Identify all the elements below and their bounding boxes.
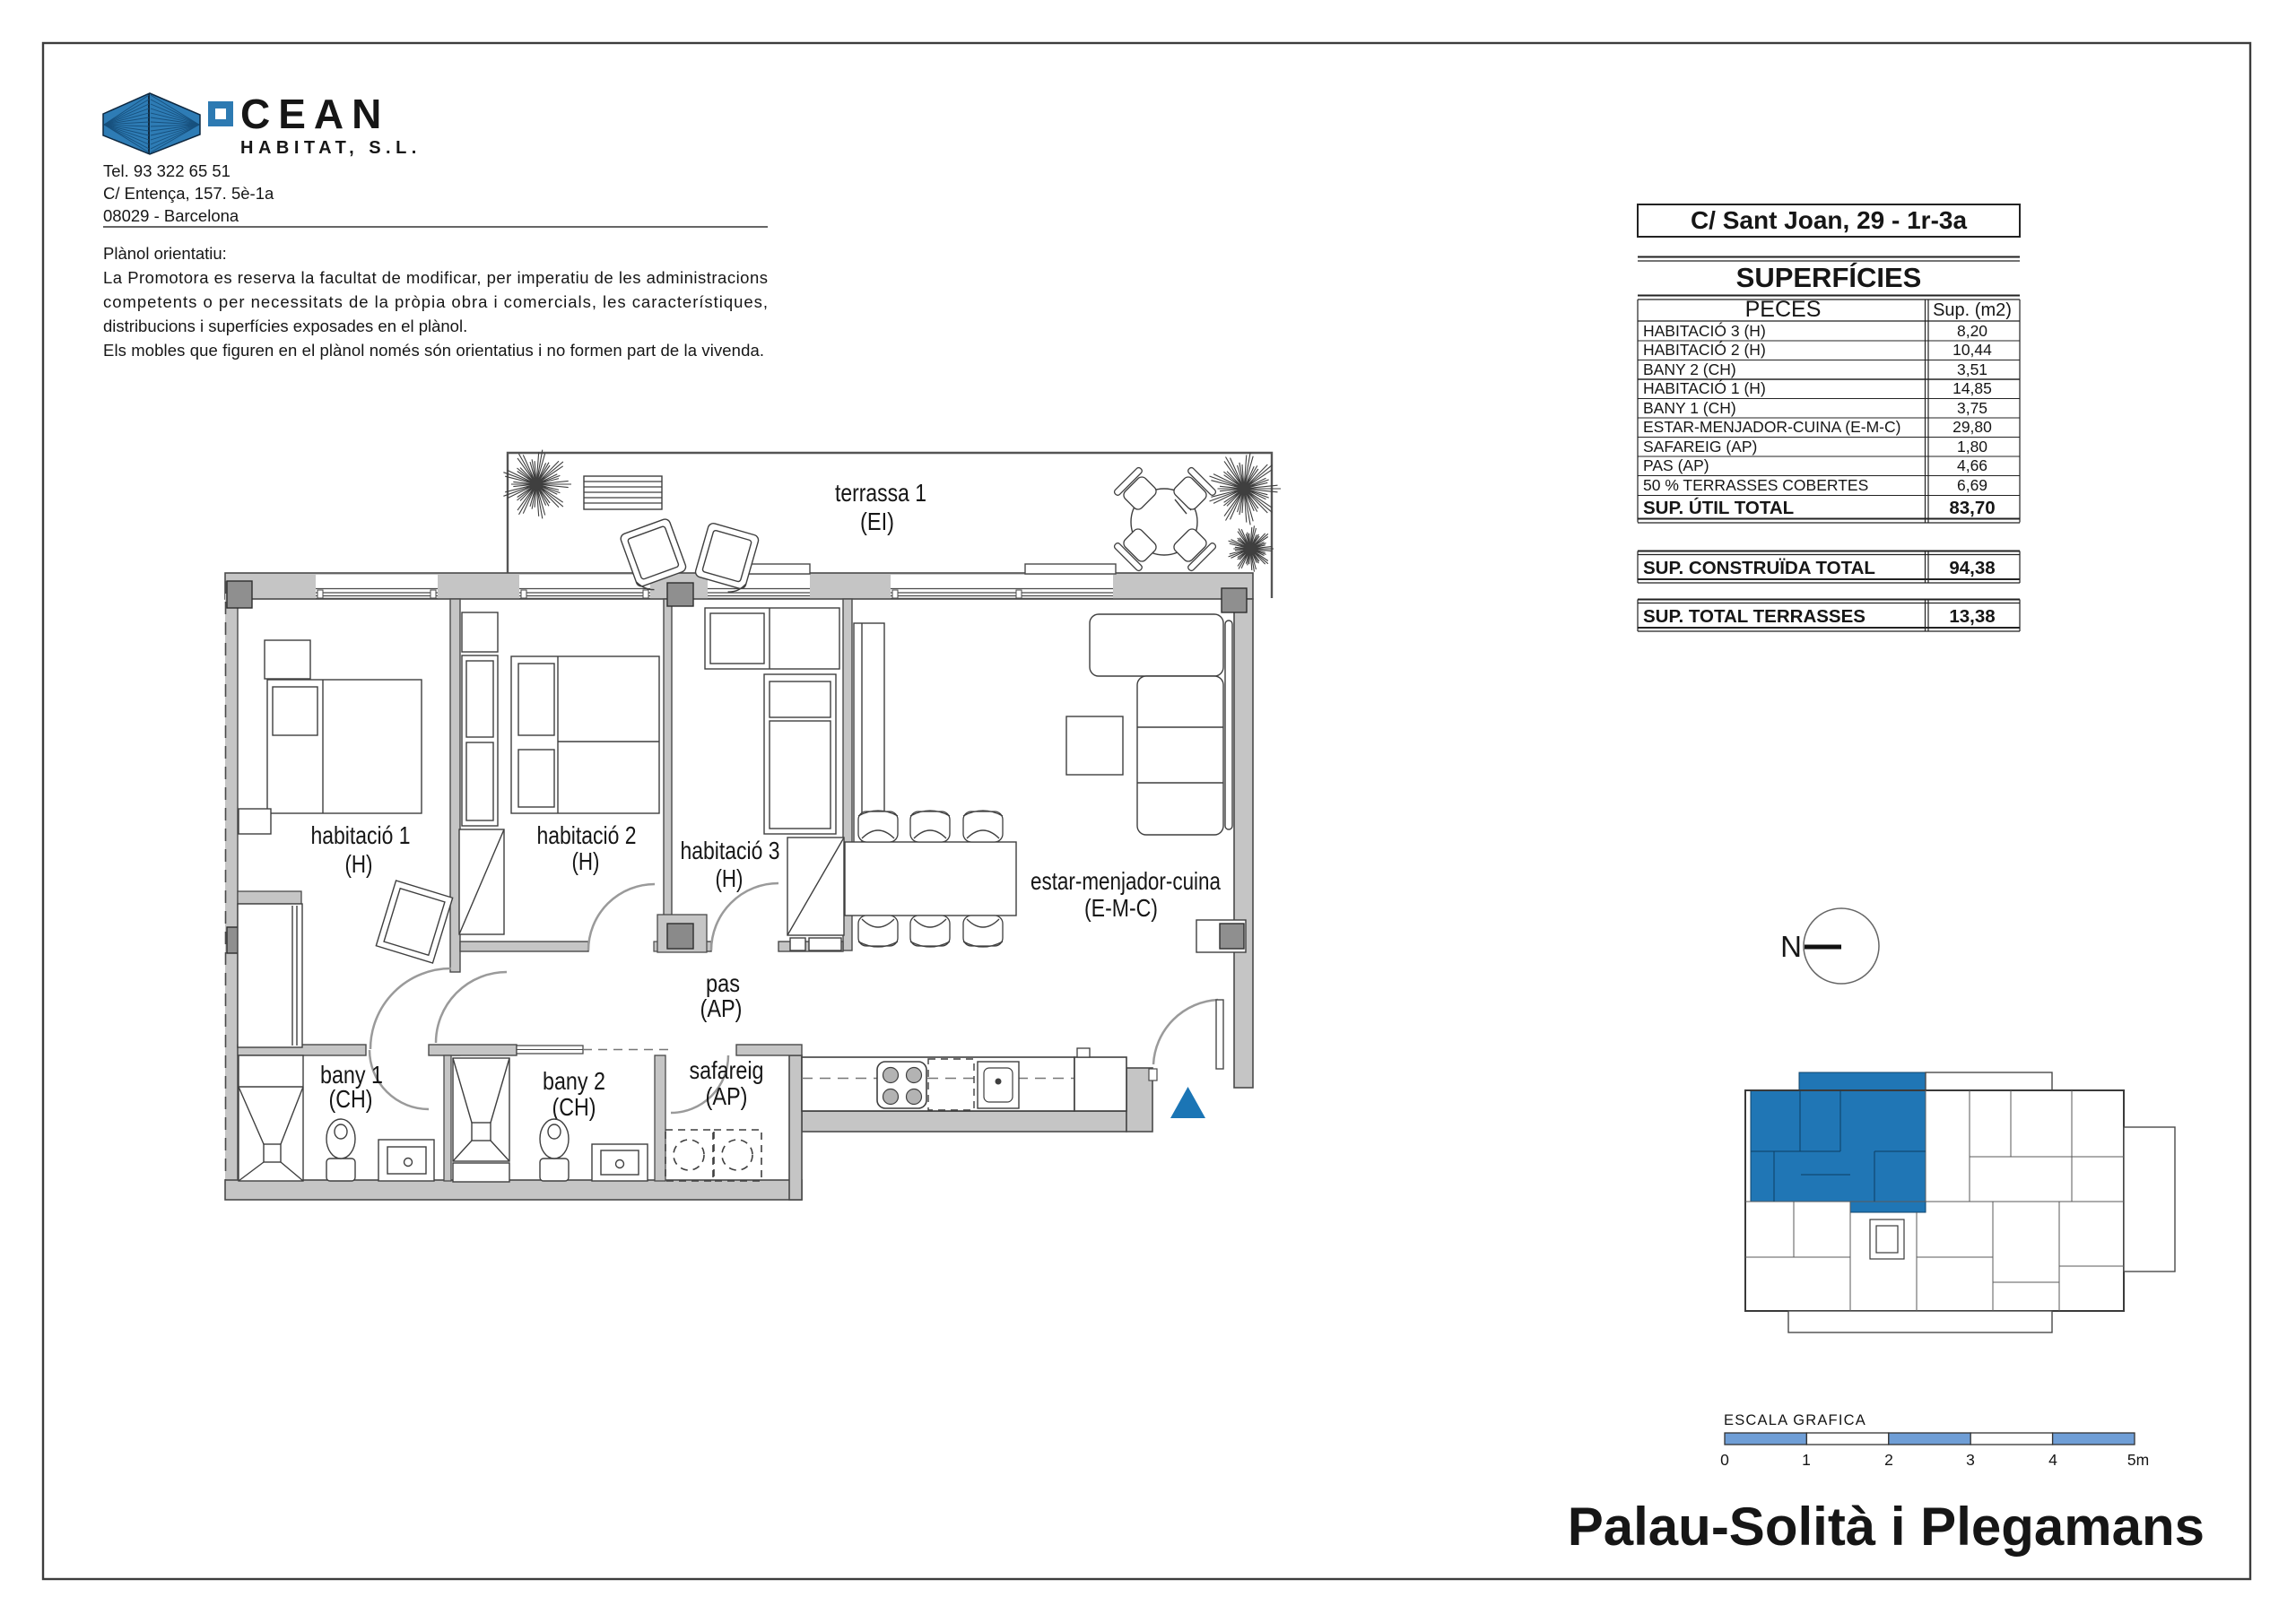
svg-text:5m: 5m (2127, 1451, 2149, 1469)
svg-text:ESTAR-MENJADOR-CUINA (E-M-C): ESTAR-MENJADOR-CUINA (E-M-C) (1643, 418, 1900, 436)
svg-text:terrassa 1: terrassa 1 (835, 479, 926, 507)
svg-text:HABITACIÓ 2 (H): HABITACIÓ 2 (H) (1643, 340, 1766, 359)
svg-text:(E-M-C): (E-M-C) (1084, 894, 1158, 922)
svg-text:habitació 1: habitació 1 (311, 821, 411, 849)
svg-text:C/ Sant Joan, 29 - 1r-3a: C/ Sant Joan, 29 - 1r-3a (1691, 206, 1968, 234)
svg-text:N: N (1780, 930, 1802, 963)
svg-text:8,20: 8,20 (1957, 322, 1987, 340)
svg-text:distribucions i superfícies ex: distribucions i superfícies exposades en… (103, 317, 467, 335)
svg-text:13,38: 13,38 (1949, 606, 1995, 627)
svg-text:3: 3 (1966, 1451, 1975, 1469)
svg-text:safareig: safareig (690, 1056, 764, 1084)
svg-text:SUP. TOTAL TERRASSES: SUP. TOTAL TERRASSES (1643, 606, 1865, 627)
svg-text:94,38: 94,38 (1949, 558, 1995, 578)
svg-text:(EI): (EI) (860, 508, 894, 535)
svg-text:29,80: 29,80 (1952, 418, 1992, 436)
svg-text:SUPERFÍCIES: SUPERFÍCIES (1736, 262, 1922, 293)
svg-text:estar-menjador-cuina: estar-menjador-cuina (1031, 867, 1221, 895)
svg-text:PAS (AP): PAS (AP) (1643, 456, 1709, 474)
svg-text:CEAN: CEAN (240, 91, 389, 137)
svg-text:SUP. CONSTRUÏDA TOTAL: SUP. CONSTRUÏDA TOTAL (1643, 558, 1875, 578)
svg-text:83,70: 83,70 (1949, 498, 1995, 518)
svg-text:La Promotora es reserva la fac: La Promotora es reserva la facultat de m… (103, 268, 768, 287)
svg-text:(H): (H) (716, 864, 744, 892)
svg-text:Els mobles que figuren en el p: Els mobles que figuren en el plànol nomé… (103, 341, 764, 360)
svg-text:4,66: 4,66 (1957, 456, 1987, 474)
svg-text:Plànol orientatiu:: Plànol orientatiu: (103, 244, 227, 263)
svg-text:0: 0 (1720, 1451, 1729, 1469)
svg-text:BANY 2 (CH): BANY 2 (CH) (1643, 360, 1736, 378)
svg-text:Tel. 93 322 65 51: Tel. 93 322 65 51 (103, 161, 230, 180)
svg-text:(AP): (AP) (706, 1082, 748, 1110)
svg-text:SAFAREIG (AP): SAFAREIG (AP) (1643, 438, 1757, 456)
svg-text:1: 1 (1802, 1451, 1811, 1469)
svg-text:competents o per necessitats d: competents o per necessitats de la pròpi… (103, 292, 768, 311)
svg-text:10,44: 10,44 (1952, 341, 1992, 359)
svg-text:Sup. (m2): Sup. (m2) (1933, 300, 2012, 320)
svg-text:SUP. ÚTIL TOTAL: SUP. ÚTIL TOTAL (1643, 497, 1794, 518)
svg-text:pas: pas (706, 969, 740, 997)
svg-text:HABITAT, S.L.: HABITAT, S.L. (240, 138, 422, 158)
svg-text:(H): (H) (572, 847, 600, 875)
svg-text:C/ Entença, 157. 5è-1a: C/ Entença, 157. 5è-1a (103, 184, 274, 203)
svg-text:HABITACIÓ 3 (H): HABITACIÓ 3 (H) (1643, 321, 1766, 340)
svg-text:6,69: 6,69 (1957, 476, 1987, 494)
svg-text:habitació 2: habitació 2 (537, 821, 637, 849)
svg-text:3,51: 3,51 (1957, 360, 1987, 378)
svg-text:ESCALA GRAFICA: ESCALA GRAFICA (1724, 1412, 1866, 1428)
svg-text:PECES: PECES (1745, 297, 1822, 322)
svg-text:BANY 1 (CH): BANY 1 (CH) (1643, 399, 1736, 417)
svg-text:habitació 3: habitació 3 (681, 837, 780, 864)
svg-text:(H): (H) (345, 850, 373, 878)
svg-text:bany 2: bany 2 (543, 1067, 605, 1095)
svg-text:14,85: 14,85 (1952, 379, 1992, 397)
svg-text:08029 - Barcelona: 08029 - Barcelona (103, 206, 239, 225)
svg-text:(CH): (CH) (552, 1093, 596, 1121)
svg-text:50 % TERRASSES COBERTES: 50 % TERRASSES COBERTES (1643, 476, 1868, 494)
svg-text:4: 4 (2048, 1451, 2057, 1469)
svg-text:HABITACIÓ 1 (H): HABITACIÓ 1 (H) (1643, 378, 1766, 397)
svg-text:Palau-Solità i Plegamans: Palau-Solità i Plegamans (1568, 1497, 2205, 1557)
svg-text:1,80: 1,80 (1957, 438, 1987, 456)
svg-text:(AP): (AP) (700, 994, 743, 1022)
svg-text:(CH): (CH) (329, 1085, 373, 1113)
svg-text:3,75: 3,75 (1957, 399, 1987, 417)
svg-text:2: 2 (1884, 1451, 1893, 1469)
